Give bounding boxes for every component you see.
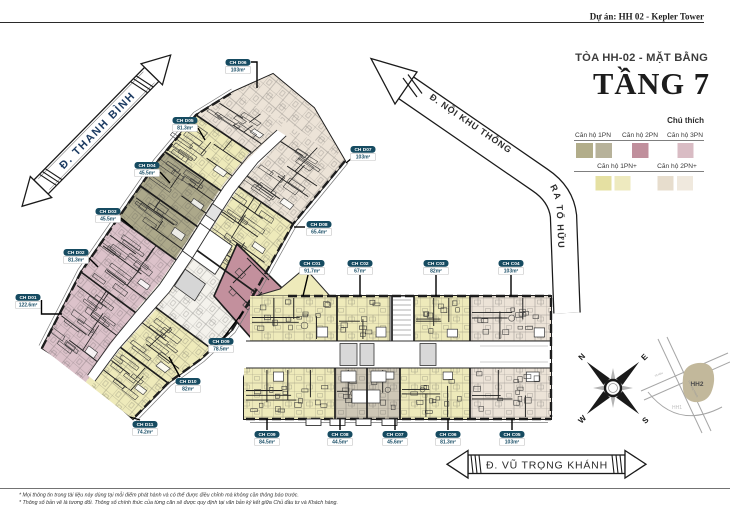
svg-text:CH C02: CH C02: [351, 261, 368, 267]
svg-text:CH D05: CH D05: [176, 118, 193, 124]
svg-text:Căn hộ 3PN: Căn hộ 3PN: [667, 132, 703, 139]
svg-text:84.5m²: 84.5m²: [259, 440, 275, 446]
svg-text:44.5m²: 44.5m²: [332, 440, 348, 446]
svg-text:* Mọi thông tin trong tài liệu: * Mọi thông tin trong tài liệu này dùng …: [19, 492, 299, 499]
svg-text:CH D04: CH D04: [138, 163, 155, 169]
svg-text:CH C06: CH C06: [439, 432, 456, 438]
svg-text:CH C04: CH C04: [502, 261, 519, 267]
svg-text:CH C03: CH C03: [427, 261, 444, 267]
svg-text:CH D01: CH D01: [19, 295, 36, 301]
svg-text:91.7m²: 91.7m²: [304, 269, 320, 275]
svg-text:82m²: 82m²: [182, 387, 194, 393]
svg-text:65.4m²: 65.4m²: [311, 230, 327, 236]
svg-text:CH C01: CH C01: [303, 261, 320, 267]
svg-text:TÒA HH-02 - MẶT BẰNG: TÒA HH-02 - MẶT BẰNG: [575, 51, 708, 64]
svg-text:CH D06: CH D06: [229, 60, 246, 66]
svg-text:81.3m²: 81.3m²: [177, 126, 193, 132]
svg-text:81.3m²: 81.3m²: [440, 440, 456, 446]
svg-text:103m²: 103m²: [356, 155, 371, 161]
svg-text:Căn hộ 2PN+: Căn hộ 2PN+: [657, 163, 697, 170]
svg-text:Căn hộ 1PN: Căn hộ 1PN: [575, 132, 611, 139]
svg-text:HH1: HH1: [672, 405, 682, 411]
svg-text:CH D07: CH D07: [354, 147, 371, 153]
svg-text:74.2m²: 74.2m²: [137, 430, 153, 436]
svg-text:CH C09: CH C09: [258, 432, 275, 438]
svg-text:103m²: 103m²: [504, 269, 519, 275]
svg-text:81.3m²: 81.3m²: [68, 258, 84, 264]
svg-text:122.6m²: 122.6m²: [19, 303, 38, 309]
svg-text:CH D10: CH D10: [179, 379, 196, 385]
svg-text:45.6m²: 45.6m²: [387, 440, 403, 446]
svg-text:67m²: 67m²: [354, 269, 366, 275]
svg-text:45.5m²: 45.5m²: [100, 217, 116, 223]
svg-text:103m²: 103m²: [231, 68, 246, 74]
svg-text:Đ. VŨ TRỌNG KHÁNH: Đ. VŨ TRỌNG KHÁNH: [486, 458, 608, 471]
svg-text:CH C07: CH C07: [386, 432, 403, 438]
svg-text:CH C05: CH C05: [503, 432, 520, 438]
svg-text:CH C08: CH C08: [331, 432, 348, 438]
svg-text:Dự án: HH 02 - Kepler Tower: Dự án: HH 02 - Kepler Tower: [590, 12, 704, 22]
svg-text:CH D02: CH D02: [67, 250, 84, 256]
svg-text:CH D11: CH D11: [137, 422, 154, 428]
svg-text:* Thông số bản vẽ là tương đối: * Thông số bản vẽ là tương đối. Thông số…: [19, 499, 338, 506]
svg-text:Chú thích: Chú thích: [667, 116, 704, 125]
svg-text:Căn hộ 2PN: Căn hộ 2PN: [622, 132, 658, 139]
svg-text:Căn hộ 1PN+: Căn hộ 1PN+: [597, 163, 637, 170]
svg-text:CH D08: CH D08: [310, 222, 327, 228]
svg-text:45.5m²: 45.5m²: [139, 171, 155, 177]
svg-text:CH D09: CH D09: [212, 339, 229, 345]
svg-text:82m²: 82m²: [430, 269, 442, 275]
svg-text:TẦNG 7: TẦNG 7: [593, 65, 710, 101]
svg-text:103m²: 103m²: [505, 440, 520, 446]
svg-text:CH D03: CH D03: [99, 209, 116, 215]
svg-text:78.5m²: 78.5m²: [213, 347, 229, 353]
